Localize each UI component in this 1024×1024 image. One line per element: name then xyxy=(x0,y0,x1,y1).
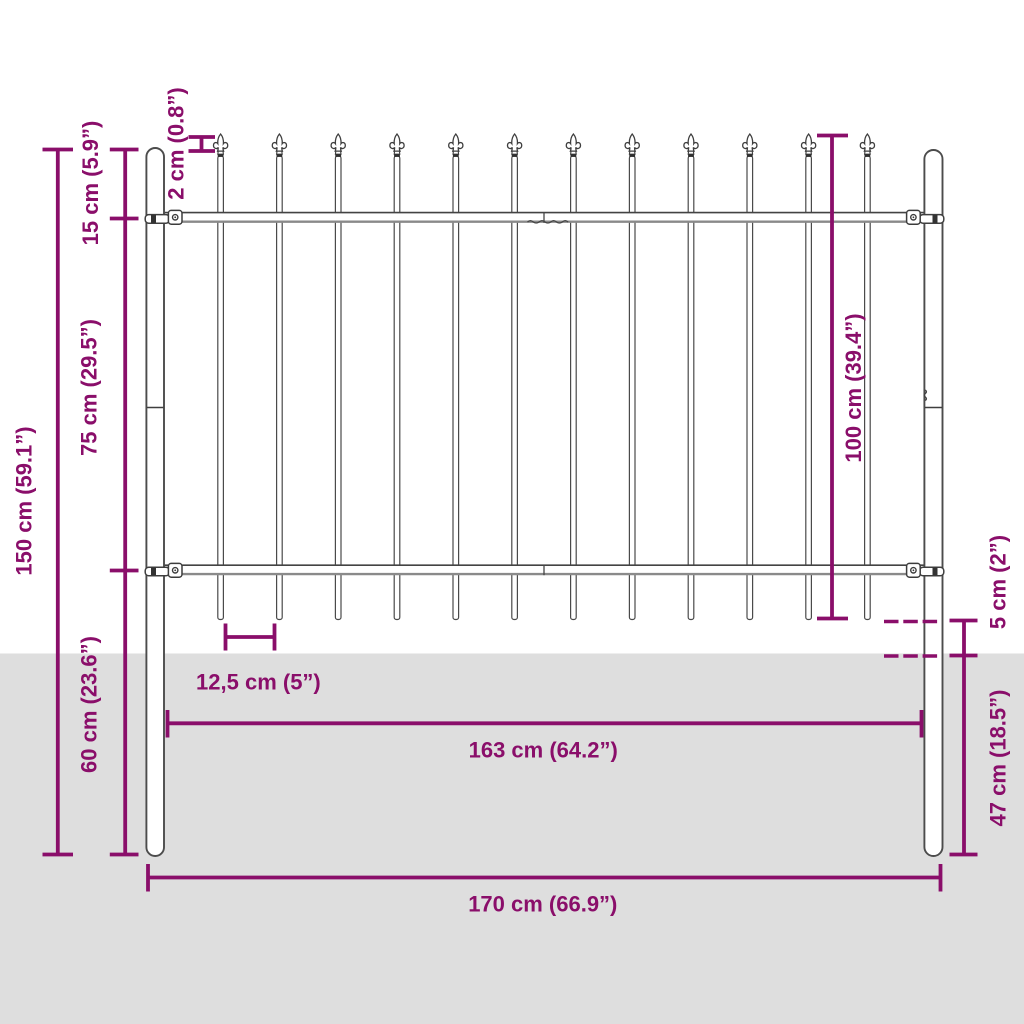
svg-text:100 cm (39.4”): 100 cm (39.4”) xyxy=(841,313,866,462)
svg-text:170 cm (66.9”): 170 cm (66.9”) xyxy=(468,892,617,917)
svg-text:163 cm (64.2”): 163 cm (64.2”) xyxy=(469,737,618,762)
svg-text:12,5 cm (5”): 12,5 cm (5”) xyxy=(196,669,321,694)
svg-text:150 cm (59.1”): 150 cm (59.1”) xyxy=(11,426,36,575)
svg-text:5 cm (2”): 5 cm (2”) xyxy=(986,535,1011,629)
svg-text:75 cm (29.5”): 75 cm (29.5”) xyxy=(77,319,102,456)
svg-text:15 cm (5.9”): 15 cm (5.9”) xyxy=(78,121,103,246)
svg-text:47 cm (18.5”): 47 cm (18.5”) xyxy=(986,690,1011,827)
svg-text:2 cm (0.8”): 2 cm (0.8”) xyxy=(164,87,189,200)
svg-text:60 cm (23.6”): 60 cm (23.6”) xyxy=(77,636,102,773)
